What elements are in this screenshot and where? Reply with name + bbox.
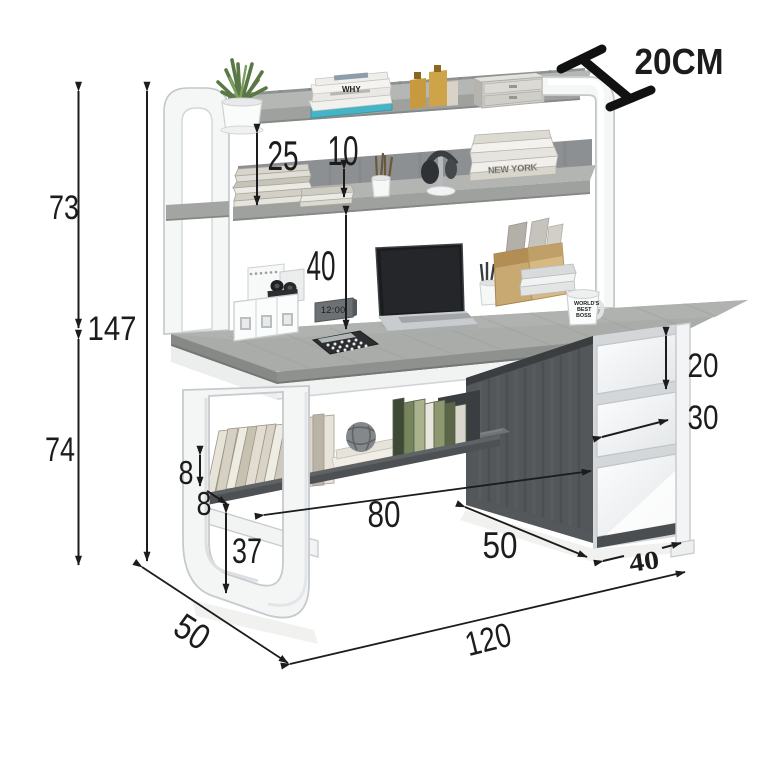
svg-text:12:00: 12:00 [321,305,346,315]
svg-text:147: 147 [88,310,137,348]
svg-text:25: 25 [268,132,299,179]
svg-text:73: 73 [49,189,79,227]
svg-text:8: 8 [179,454,194,491]
svg-text:40: 40 [627,545,661,578]
svg-text:20: 20 [688,347,719,385]
svg-text:20CM: 20CM [635,41,724,82]
svg-text:40: 40 [307,242,336,289]
svg-text:10: 10 [328,127,359,174]
svg-text:74: 74 [45,431,75,469]
svg-text:BOSS: BOSS [576,313,592,319]
svg-text:30: 30 [688,399,719,437]
svg-text:50: 50 [483,525,518,566]
svg-text:80: 80 [368,494,401,535]
svg-text:37: 37 [232,532,262,571]
svg-text:8: 8 [197,485,212,522]
svg-text:WHY: WHY [342,85,361,94]
